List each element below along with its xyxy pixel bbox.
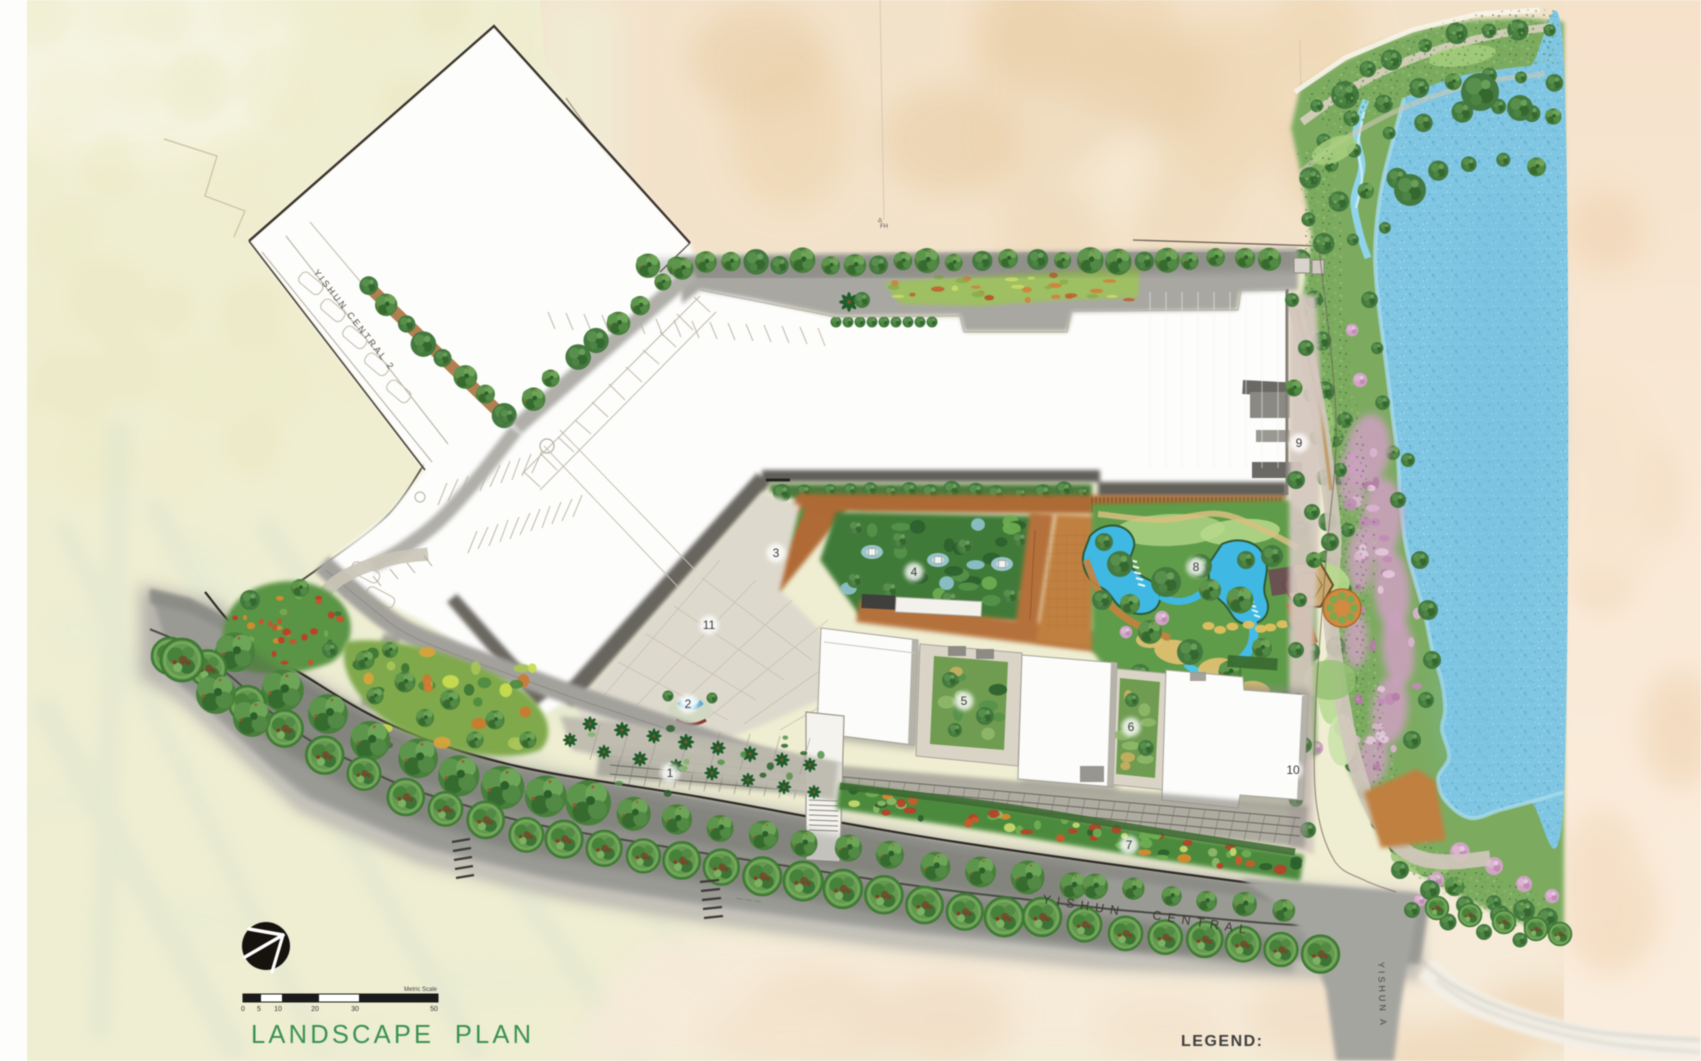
svg-text:20: 20	[311, 1006, 319, 1013]
svg-text:0: 0	[241, 1006, 245, 1013]
svg-text:50: 50	[430, 1006, 438, 1013]
svg-text:FH: FH	[880, 224, 888, 230]
svg-text:LANDSCAPE PLAN: LANDSCAPE PLAN	[251, 1021, 534, 1049]
svg-text:8: 8	[1193, 560, 1200, 574]
svg-text:LEGEND:: LEGEND:	[1181, 1033, 1264, 1050]
svg-text:1: 1	[667, 766, 674, 780]
svg-text:3: 3	[773, 546, 780, 560]
svg-text:9: 9	[1296, 436, 1303, 450]
svg-text:10: 10	[1286, 763, 1300, 777]
svg-text:6: 6	[1128, 720, 1135, 734]
svg-text:10: 10	[274, 1006, 282, 1013]
svg-text:11: 11	[703, 618, 716, 632]
svg-text:Metric Scale: Metric Scale	[404, 987, 438, 993]
svg-text:Δ: Δ	[878, 218, 882, 224]
svg-text:5: 5	[961, 694, 968, 708]
svg-text:2: 2	[685, 697, 692, 711]
svg-text:30: 30	[351, 1006, 359, 1013]
svg-text:7: 7	[1126, 838, 1133, 852]
svg-text:4: 4	[911, 565, 918, 579]
svg-text:5: 5	[257, 1006, 261, 1013]
